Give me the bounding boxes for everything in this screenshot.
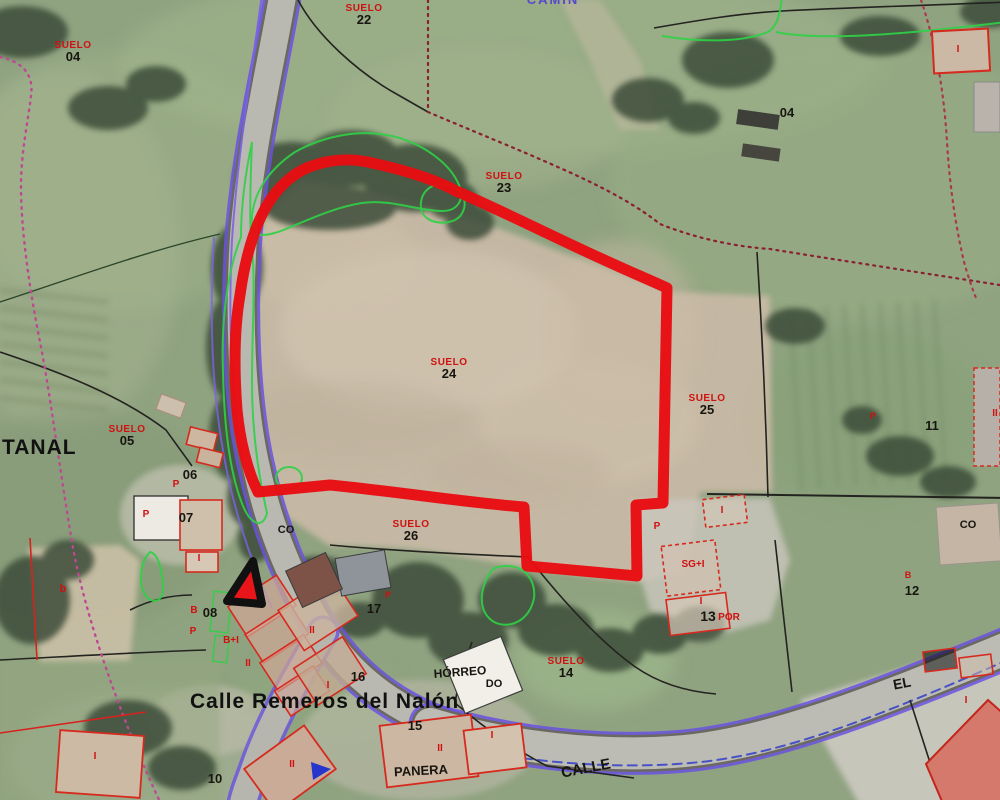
cadastral-map: SUELO04SUELO22SUELO23SUELO24SUELO25SUELO…	[0, 0, 1000, 800]
map-art	[0, 0, 1000, 800]
